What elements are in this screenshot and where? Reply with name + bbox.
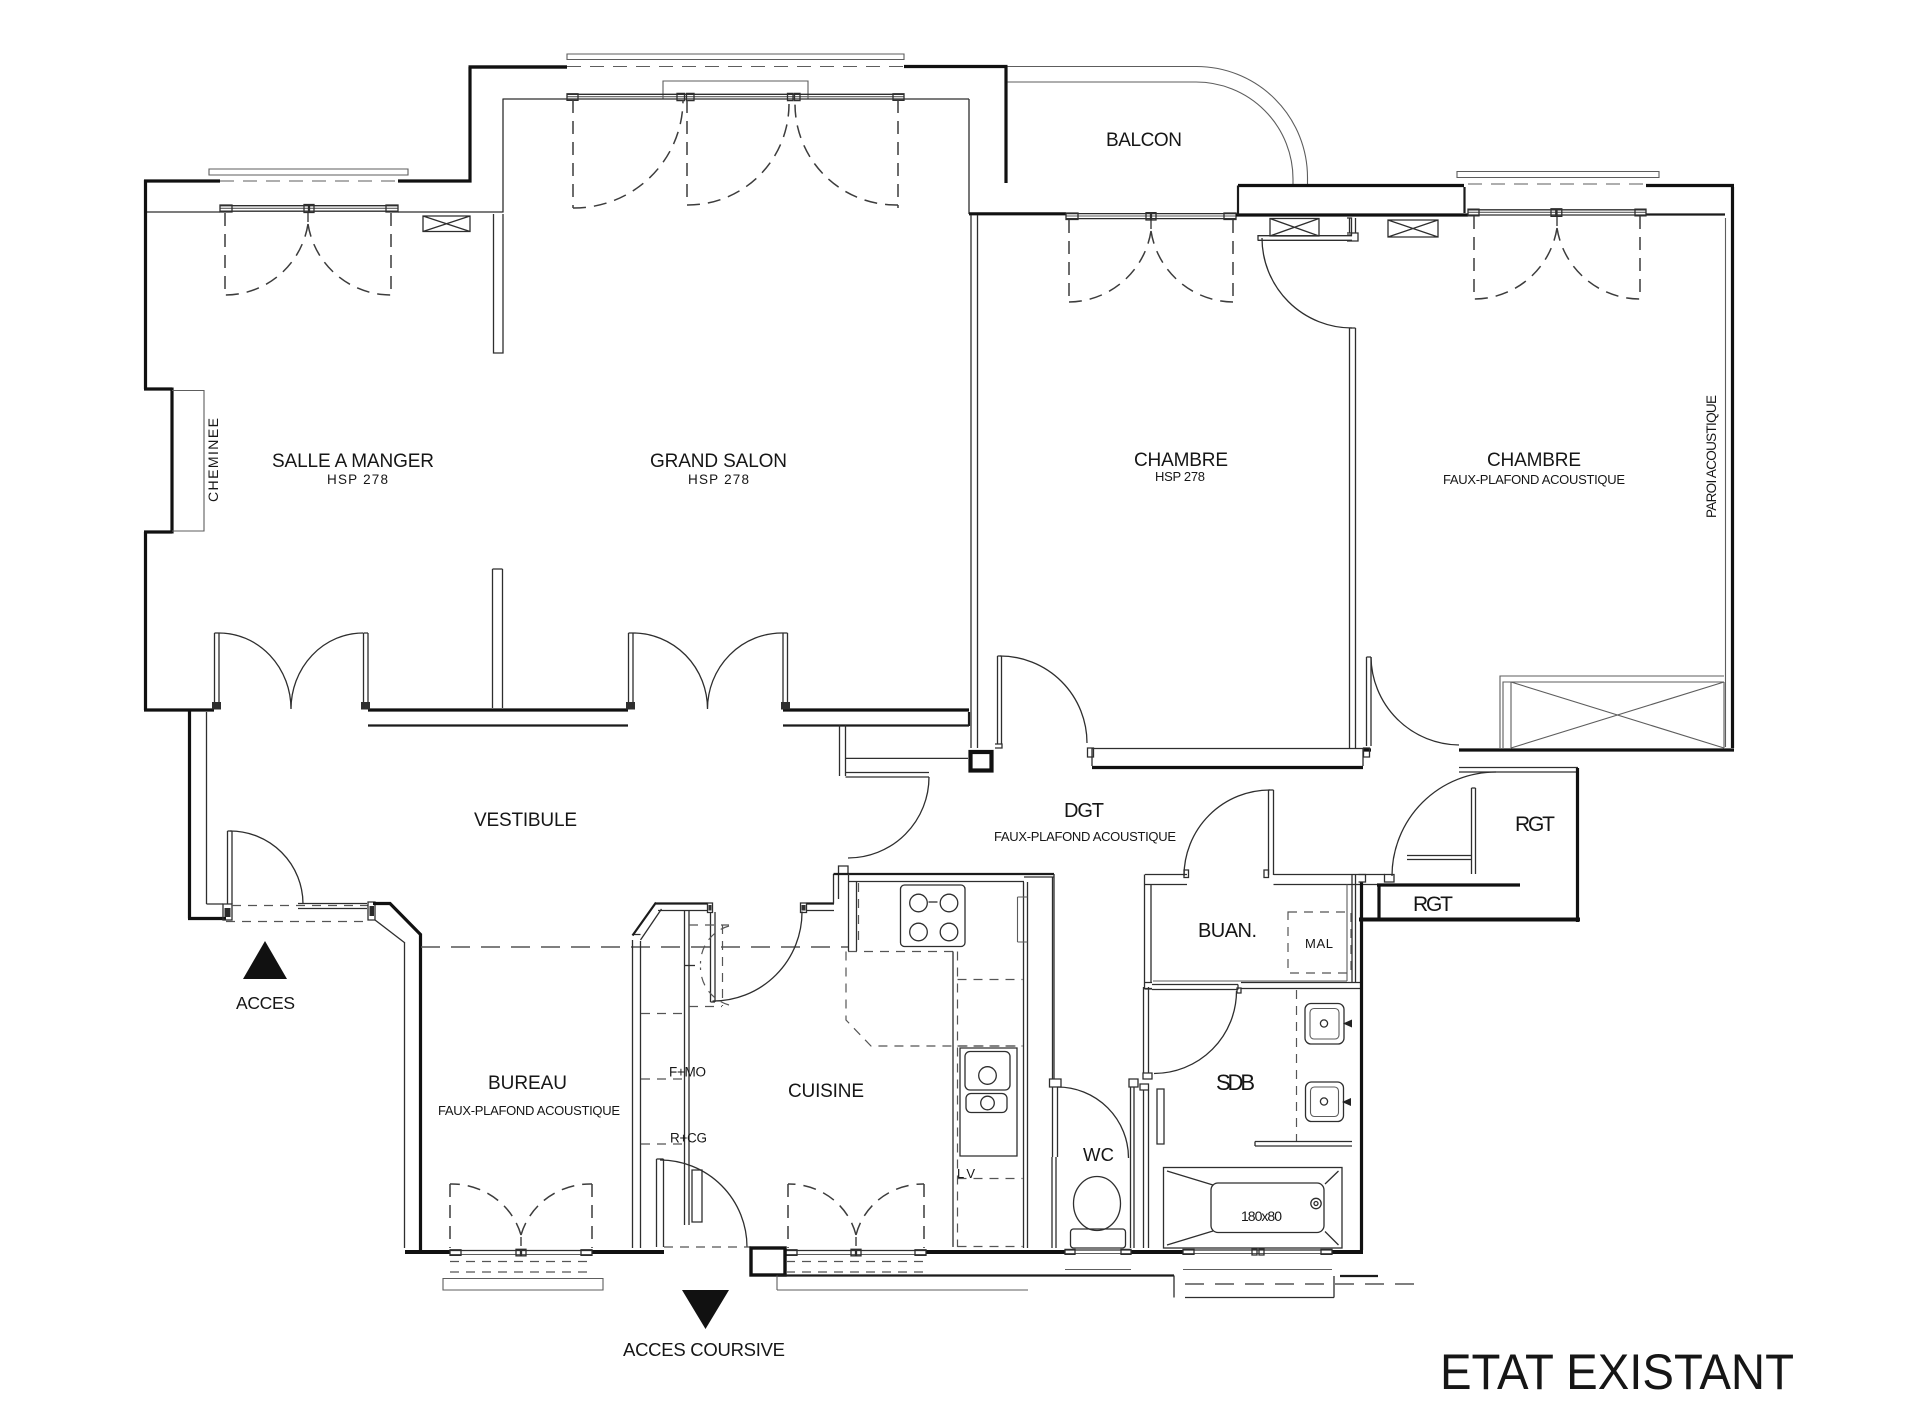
svg-text:HSP 278: HSP 278	[327, 472, 388, 487]
svg-text:LV: LV	[957, 1166, 975, 1181]
svg-text:BUREAU: BUREAU	[488, 1073, 567, 1094]
svg-text:VESTIBULE: VESTIBULE	[474, 810, 577, 831]
svg-text:R+CG: R+CG	[670, 1131, 707, 1146]
svg-text:SDB: SDB	[1216, 1070, 1255, 1095]
svg-text:MAL: MAL	[1305, 936, 1333, 951]
svg-text:FAUX-PLAFOND ACOUSTIQUE: FAUX-PLAFOND ACOUSTIQUE	[438, 1103, 620, 1118]
svg-text:DGT: DGT	[1064, 800, 1104, 822]
svg-text:CUISINE: CUISINE	[788, 1081, 864, 1102]
svg-text:FAUX-PLAFOND ACOUSTIQUE: FAUX-PLAFOND ACOUSTIQUE	[994, 829, 1176, 844]
svg-text:ETAT EXISTANT: ETAT EXISTANT	[1440, 1344, 1794, 1400]
svg-text:180x80: 180x80	[1241, 1208, 1282, 1224]
svg-text:BUAN.: BUAN.	[1198, 920, 1257, 942]
svg-text:F+MO: F+MO	[669, 1065, 706, 1080]
svg-text:RGT: RGT	[1515, 813, 1555, 836]
svg-text:RGT: RGT	[1413, 893, 1453, 916]
svg-text:CHAMBRE: CHAMBRE	[1134, 450, 1228, 471]
svg-text:GRAND SALON: GRAND SALON	[650, 451, 787, 472]
svg-text:WC: WC	[1083, 1144, 1114, 1165]
svg-text:BALCON: BALCON	[1106, 130, 1182, 151]
svg-text:FAUX-PLAFOND ACOUSTIQUE: FAUX-PLAFOND ACOUSTIQUE	[1443, 472, 1625, 487]
svg-text:HSP 278: HSP 278	[1155, 469, 1205, 484]
svg-text:HSP 278: HSP 278	[688, 472, 749, 487]
svg-text:SALLE A MANGER: SALLE A MANGER	[272, 451, 434, 472]
svg-text:ACCES: ACCES	[236, 993, 295, 1013]
svg-text:PAROI ACOUSTIQUE: PAROI ACOUSTIQUE	[1704, 395, 1719, 518]
svg-text:ACCES COURSIVE: ACCES COURSIVE	[623, 1339, 785, 1360]
svg-text:CHEMINEE: CHEMINEE	[205, 418, 221, 502]
svg-text:CHAMBRE: CHAMBRE	[1487, 450, 1581, 471]
